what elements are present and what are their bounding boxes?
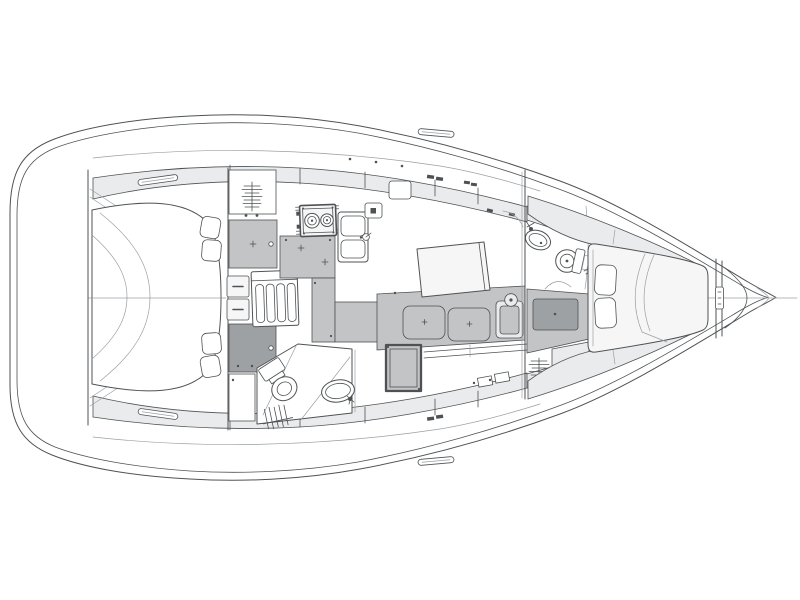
appliance-box [365,203,382,218]
companionway-stairs [251,270,299,327]
galley-counter-strip [312,278,335,342]
yacht-floorplan-canvas [0,0,800,600]
galley-counter-band [335,302,379,342]
cabinet-knob-2 [269,346,273,350]
stove-icon [295,204,339,236]
cabinet-knob [269,242,273,246]
table-icon [417,242,490,297]
double-sink-icon [338,212,371,262]
galley-notch [389,181,411,199]
galley-counter [280,236,335,278]
yacht-floorplan [0,0,800,600]
fridge-icon [386,345,421,391]
